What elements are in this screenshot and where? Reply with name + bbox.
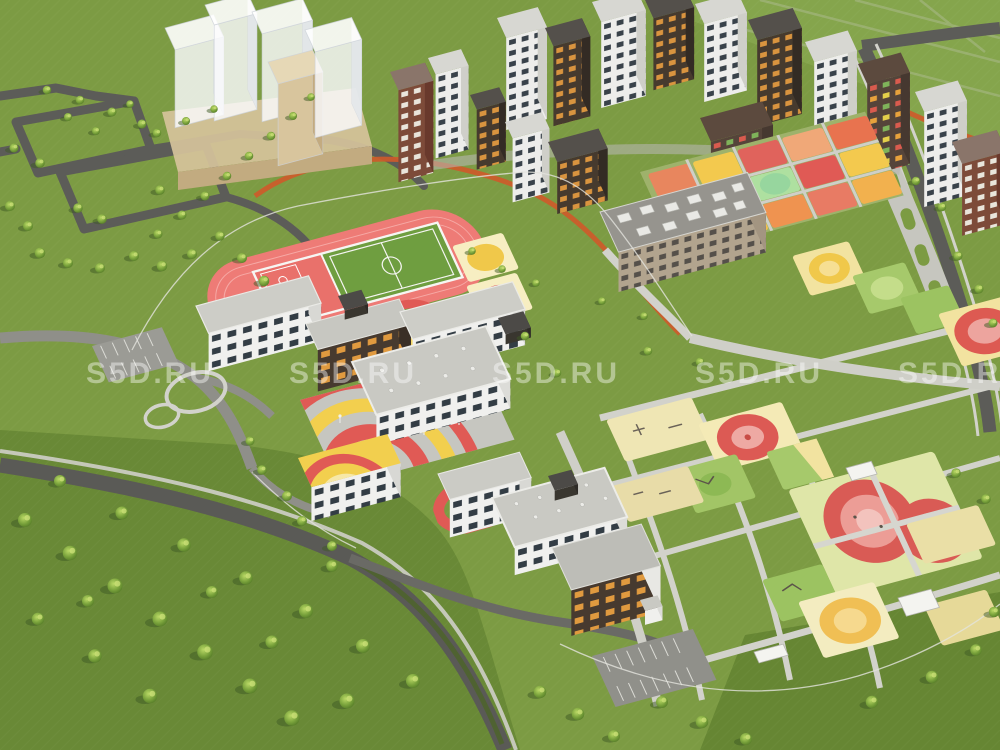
watermark-text: S5D.RU — [898, 357, 1000, 390]
aerial-render-masterplan: S5D.RU S5D.RU S5D.RU S5D.RU S5D.RU — [0, 0, 1000, 750]
watermark-text: S5D.RU — [492, 357, 620, 390]
watermark-text: S5D.RU — [289, 357, 417, 390]
planned-buildings — [162, 0, 372, 190]
render-canvas: S5D.RU S5D.RU S5D.RU S5D.RU S5D.RU — [0, 0, 1000, 750]
watermark-text: S5D.RU — [86, 357, 214, 390]
watermark-text: S5D.RU — [695, 357, 823, 390]
